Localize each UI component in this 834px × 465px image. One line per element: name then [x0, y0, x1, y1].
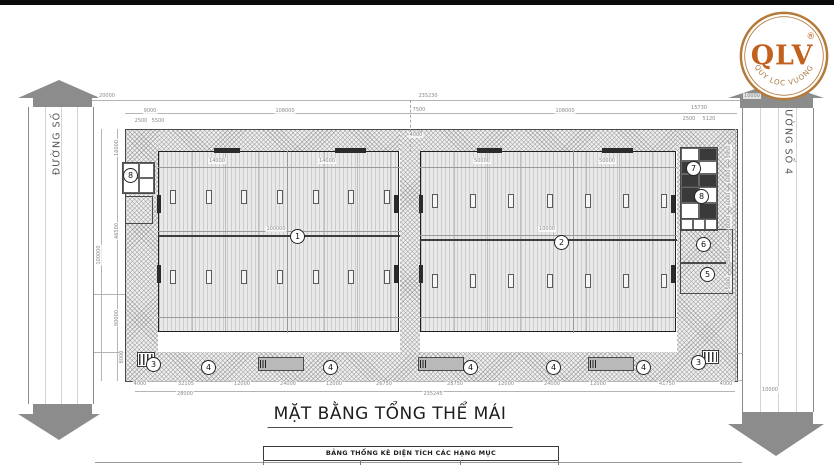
callout-marker-4: 4 — [201, 360, 216, 375]
dimension-label: 4000 — [133, 381, 148, 387]
left-gate-yard — [125, 196, 153, 224]
callout-marker-8: 8 — [694, 189, 709, 204]
dimension-label: 32105 — [177, 381, 195, 387]
dimension-label: 50000 — [598, 158, 616, 164]
callout-marker-4: 4 — [463, 360, 478, 375]
building-1 — [158, 151, 399, 332]
roof-skylight — [348, 190, 354, 204]
dimension-label: 2500 — [134, 118, 149, 124]
dimension-label: 20000 — [98, 93, 116, 99]
dimension-label: 6000 — [726, 192, 732, 207]
roof-skylight — [206, 190, 212, 204]
dimension-label: 8000 — [119, 350, 125, 365]
roof-skylight — [470, 194, 476, 208]
lane-line — [77, 107, 78, 404]
roof-top-vent — [602, 148, 633, 153]
dimension-label: 100000 — [96, 244, 102, 265]
dimension-label: 24000 — [279, 381, 297, 387]
roof-skylight — [623, 274, 629, 288]
roof-top-vent — [477, 148, 503, 153]
roof-skylight — [661, 194, 667, 208]
callout-marker-4: 4 — [636, 360, 651, 375]
lane-line — [778, 108, 779, 412]
dimension-label: 30000 — [726, 246, 732, 264]
drawing-title: MẶT BẰNG TỔNG THỂ MÁI — [268, 404, 513, 428]
dimension-label: 108000 — [274, 108, 295, 114]
road-right-bottom-arrow — [728, 424, 824, 456]
roof-edge-vent — [671, 265, 675, 283]
dimension-label: 9000 — [143, 108, 158, 114]
dimension-label: 41750 — [658, 381, 676, 387]
dimension-label: 10000 — [538, 226, 556, 232]
dimension-label: 28750 — [446, 381, 464, 387]
roof-skylight — [432, 194, 438, 208]
roof-skylight — [432, 274, 438, 288]
dimension-label: 46500 — [114, 222, 120, 240]
dimension-label: 7500 — [412, 107, 427, 113]
roof-skylight — [623, 194, 629, 208]
roof-skylight — [313, 190, 319, 204]
table-partial-row — [263, 460, 559, 465]
callout-marker-7: 7 — [686, 161, 701, 176]
dimension-label: 4000 — [719, 381, 734, 387]
roof-skylight — [384, 270, 390, 284]
dimension-label: 80000 — [114, 309, 120, 327]
roof-skylight — [508, 194, 514, 208]
dimension-label: 5000 — [726, 276, 732, 291]
road-left-label: ĐƯỜNG SỐ 2 — [52, 101, 63, 175]
roof-edge-vent — [157, 195, 161, 213]
dimension-label: 28000 — [176, 391, 194, 397]
dim-line — [117, 129, 118, 381]
roof-top-vent — [214, 148, 241, 153]
building-2 — [420, 151, 676, 332]
dimension-label: 6000 — [726, 169, 732, 184]
roof-purlin-line — [420, 317, 677, 318]
roof-skylight — [661, 274, 667, 288]
road-left-bottom-bar — [33, 404, 92, 414]
dimension-label: 24000 — [543, 381, 561, 387]
road-right — [742, 108, 814, 412]
roof-skylight — [384, 190, 390, 204]
dimension-label: 16000 — [114, 139, 120, 157]
dimension-label: 235230 — [417, 93, 438, 99]
registered-mark: ® — [807, 32, 816, 42]
dimension-label: 12000 — [497, 381, 515, 387]
dimension-label: 14000 — [208, 158, 226, 164]
dimension-label: 8000 — [726, 215, 732, 230]
roof-sub-ridge-line — [420, 235, 677, 236]
road-left-bottom-arrow — [18, 414, 100, 440]
roof-edge-vent — [419, 195, 423, 213]
dimension-label: 235245 — [422, 391, 443, 397]
dimension-label: 12000 — [233, 381, 251, 387]
dimension-label: 3950 — [726, 145, 732, 160]
roof-skylight — [170, 270, 176, 284]
road-right-label: ĐƯỜNG SỐ 4 — [783, 101, 794, 175]
dimension-label: 26750 — [375, 381, 393, 387]
roof-skylight — [508, 274, 514, 288]
dimension-label: 5120 — [702, 116, 717, 122]
dimension-label: 15730 — [690, 105, 708, 111]
statistics-table-header: BẢNG THỐNG KÊ DIỆN TÍCH CÁC HẠNG MỤC — [263, 446, 559, 461]
dimension-label: 2500 — [682, 116, 697, 122]
dimension-label: 12000 — [589, 381, 607, 387]
roof-edge-vent — [671, 195, 675, 213]
roof-edge-vent — [394, 195, 398, 213]
callout-marker-8: 8 — [123, 168, 138, 183]
dim-line — [125, 113, 737, 114]
roof-purlin-line — [158, 167, 400, 168]
roof-edge-vent — [419, 265, 423, 283]
callout-marker-6: 6 — [696, 237, 711, 252]
callout-marker-3: 3 — [146, 357, 161, 372]
callout-marker-5: 5 — [700, 267, 715, 282]
roof-edge-vent — [157, 265, 161, 283]
roof-bay-line — [573, 151, 574, 333]
dim-line — [735, 129, 736, 381]
callout-marker-4: 4 — [323, 360, 338, 375]
roof-skylight — [170, 190, 176, 204]
gate-crossing — [258, 357, 304, 371]
dimension-label: 4000 — [409, 132, 424, 138]
roof-skylight — [313, 270, 319, 284]
entrance-edge — [92, 294, 125, 295]
roof-skylight — [585, 194, 591, 208]
road-left-top-bar — [33, 98, 92, 107]
dimension-label: 50000 — [473, 158, 491, 164]
roof-bay-line — [287, 151, 288, 333]
roof-purlin-line — [158, 317, 400, 318]
dimension-label: 14000 — [318, 158, 336, 164]
road-left-top-arrow — [18, 80, 100, 98]
lane-line — [45, 107, 46, 404]
roof-skylight — [547, 274, 553, 288]
dimension-label: 100000 — [265, 226, 286, 232]
roof-skylight — [241, 270, 247, 284]
gate-crossing — [588, 357, 634, 371]
dim-line — [135, 381, 735, 382]
lane-line — [796, 108, 797, 412]
callout-marker-3: 3 — [691, 355, 706, 370]
gate-crossing — [418, 357, 464, 371]
roof-skylight — [206, 270, 212, 284]
roof-skylight — [585, 274, 591, 288]
dimension-label: 108000 — [554, 108, 575, 114]
dimension-label: 12000 — [325, 381, 343, 387]
roof-plan-drawing: ĐƯỜNG SỐ 2 ĐƯỜNG SỐ 4 12878653444443 200… — [0, 0, 834, 465]
roof-skylight — [547, 194, 553, 208]
roof-top-vent — [335, 148, 366, 153]
road-right-bottom-bar — [742, 412, 813, 424]
dimension-label: 10000 — [761, 387, 779, 393]
roof-ridge-line — [158, 235, 400, 237]
roof-purlin-line — [420, 167, 677, 168]
roof-ridge-line — [420, 239, 677, 241]
lane-line — [760, 108, 761, 412]
roof-skylight — [241, 190, 247, 204]
qlv-logo: QLV ® QUY LOC VUONG — [738, 10, 830, 102]
top-black-bar — [0, 0, 834, 5]
dimension-label: 5500 — [151, 118, 166, 124]
roof-skylight — [348, 270, 354, 284]
callout-marker-1: 1 — [290, 229, 305, 244]
roof-edge-vent — [394, 265, 398, 283]
callout-marker-4: 4 — [546, 360, 561, 375]
dim-line — [92, 100, 742, 101]
callout-marker-2: 2 — [554, 235, 569, 250]
roof-skylight — [470, 274, 476, 288]
roof-skylight — [277, 190, 283, 204]
roof-skylight — [277, 270, 283, 284]
